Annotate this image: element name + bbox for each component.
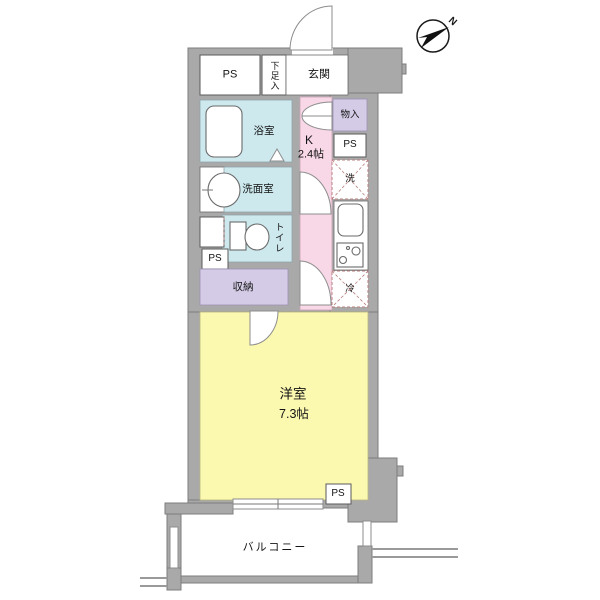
bathtub: [206, 106, 242, 157]
toilet-tank: [230, 222, 246, 250]
balcony-partition-right: [363, 521, 371, 546]
label-balcony: バルコニー: [243, 543, 308, 554]
label-washer: 洗: [345, 174, 355, 184]
balcony-wall-right: [358, 546, 372, 583]
label-fridge: 冷: [345, 284, 355, 294]
balcony-wall-bottom: [181, 576, 358, 583]
label-toilet: トイレ: [273, 222, 283, 254]
balcony-wall-left-foot: [167, 568, 181, 590]
floor-plan-drawing: [0, 0, 600, 600]
stove-burner-large: [352, 247, 360, 255]
label-bathroom: 浴室: [254, 126, 275, 137]
label-ps-left: PS: [208, 254, 221, 264]
label-kitchen-size: 2.4帖: [298, 150, 324, 161]
floor-plan: PS 下足入 玄関 物入 PS 洗 K 2.4帖 浴室 洗面室 トイレ PS 収…: [0, 0, 600, 600]
label-washroom: 洗面室: [242, 184, 274, 195]
label-ps-right: PS: [343, 140, 356, 150]
label-storage: 収納: [233, 282, 254, 293]
label-shoe-box: 下足入: [270, 61, 279, 91]
stove-knob: [347, 247, 350, 250]
label-western-room: 洋室: [280, 387, 307, 401]
wall-pillar-notch: [397, 466, 403, 476]
entrance-door-swing: [290, 6, 332, 50]
label-entrance: 玄関: [308, 70, 330, 81]
wall-top-right-notch: [402, 64, 406, 74]
label-ps-bottom: PS: [331, 489, 344, 499]
wall-top-right-block: [348, 48, 402, 93]
balcony-side-panel-left: [170, 527, 178, 568]
label-western-room-size: 7.3帖: [279, 408, 309, 421]
kitchen-sink: [338, 204, 363, 236]
label-closet-upper: 物入: [340, 110, 359, 120]
stove-burner-small: [340, 257, 347, 264]
toilet-bowl: [245, 224, 269, 250]
label-kitchen: K: [305, 134, 313, 146]
balcony-wall-top-left: [165, 503, 233, 514]
label-ps-top: PS: [223, 70, 238, 81]
compass: [417, 20, 449, 52]
toilet-counter: [200, 217, 224, 247]
